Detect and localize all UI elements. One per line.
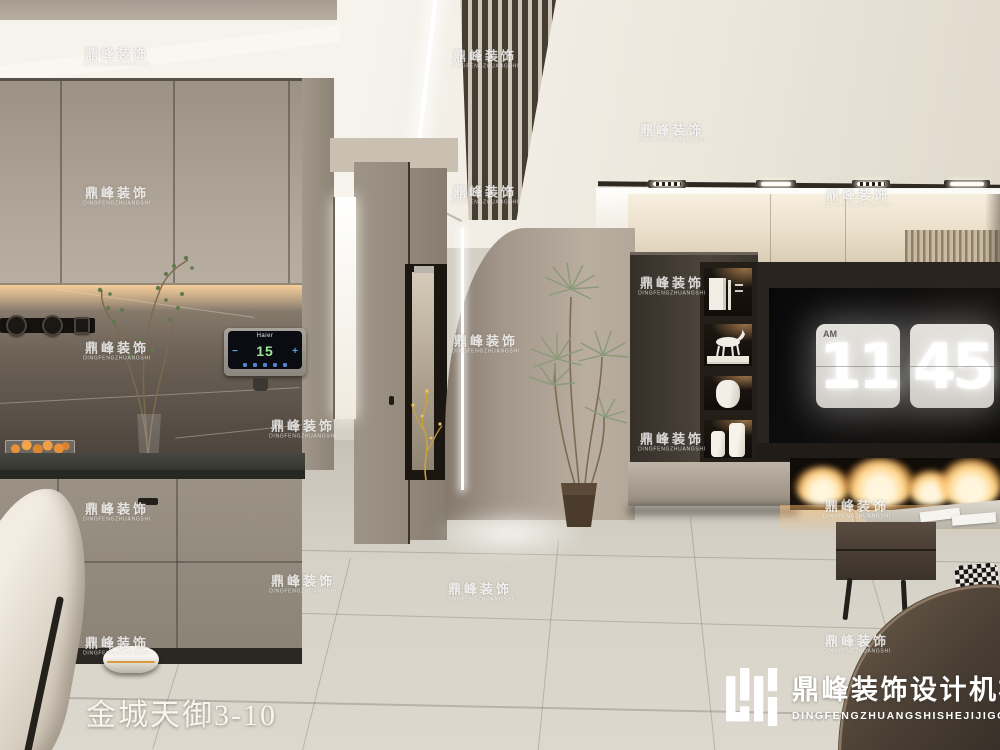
flame — [845, 458, 915, 508]
book-stack — [707, 356, 749, 362]
candle-jar — [711, 431, 725, 457]
books — [709, 278, 726, 310]
clock-hour: 11 — [819, 330, 897, 403]
flip-clock-hour-card: AM 11 — [816, 324, 900, 408]
display-niche-cap — [414, 266, 434, 273]
half-height-partition — [300, 402, 366, 564]
clock-minute: 45 — [913, 330, 991, 403]
ceiling-bulkhead-band — [0, 0, 337, 20]
book-text — [735, 284, 743, 286]
face-vase — [716, 380, 740, 408]
drawer-handle — [138, 498, 158, 505]
clock-meridiem: AM — [823, 329, 837, 339]
project-title: 金城天御3-10 — [86, 690, 277, 734]
dispenser-icon-row — [243, 363, 287, 367]
cabinet-top-highlight — [630, 252, 758, 255]
dispenser-mode-icon — [273, 363, 277, 367]
gold-branch-decor — [404, 372, 448, 482]
shelf-niche-books — [704, 268, 752, 316]
track-spotlight-grille — [852, 180, 890, 188]
wall-water-dispenser: Haier − 15 + — [224, 328, 306, 376]
dispenser-mode-icon — [243, 363, 247, 367]
logo-cn: 鼎峰装饰设计机构 — [792, 668, 1000, 707]
dispenser-temperature: 15 — [256, 343, 274, 359]
wall-led-line — [461, 228, 464, 490]
logo-text: 鼎峰装饰设计机构 DINGFENGZHUANGSHISHEJIJIGOU — [792, 668, 1000, 722]
cabinet-seam — [176, 479, 178, 651]
rail-socket-knob — [6, 315, 27, 336]
countertop-edge — [0, 470, 305, 479]
shelf-niche-candles — [704, 420, 752, 458]
bench-shadow — [628, 505, 798, 516]
robot-vacuum — [103, 646, 159, 673]
dispenser-screen: Haier − 15 + — [228, 331, 302, 369]
shelf-niche-sculpture — [704, 324, 752, 366]
dispenser-mode-icon — [283, 363, 287, 367]
flame — [940, 458, 1000, 508]
flame — [795, 466, 850, 506]
track-linear-light — [944, 180, 990, 188]
dispenser-mode-icon — [263, 363, 267, 367]
cabinet-seam — [288, 81, 290, 287]
flip-clock-minute-card: 45 — [910, 324, 994, 408]
cabinet-shelf-column — [700, 262, 758, 462]
company-logo: 鼎峰装饰设计机构 DINGFENGZHUANGSHISHEJIJIGOU — [726, 668, 1000, 726]
track-linear-light — [756, 180, 796, 188]
track-spotlight-grille — [648, 180, 686, 188]
book-text — [735, 290, 743, 292]
dispenser-plus-button: + — [292, 346, 298, 357]
floating-media-bench — [628, 462, 792, 506]
dispenser-brand: Haier — [257, 333, 274, 339]
dispenser-minus-button: − — [232, 346, 238, 357]
shelf-niche-vase — [704, 376, 752, 410]
logo-mark-icon — [726, 668, 782, 726]
cabinet-seam — [60, 81, 62, 287]
logo-en: DINGFENGZHUANGSHISHEJIJIGOU — [792, 710, 1000, 722]
fireplace — [790, 458, 1000, 510]
book-spine — [728, 280, 731, 310]
backlit-wall-niche — [333, 197, 356, 419]
candle-jar — [729, 423, 745, 457]
horse-sculpture — [708, 328, 748, 358]
rail-socket-knob — [42, 315, 63, 336]
dispenser-spout — [253, 378, 268, 391]
interior-render-scene: AM 11 45 — [0, 0, 1000, 750]
door-handle — [389, 396, 394, 405]
dispenser-mode-icon — [253, 363, 257, 367]
